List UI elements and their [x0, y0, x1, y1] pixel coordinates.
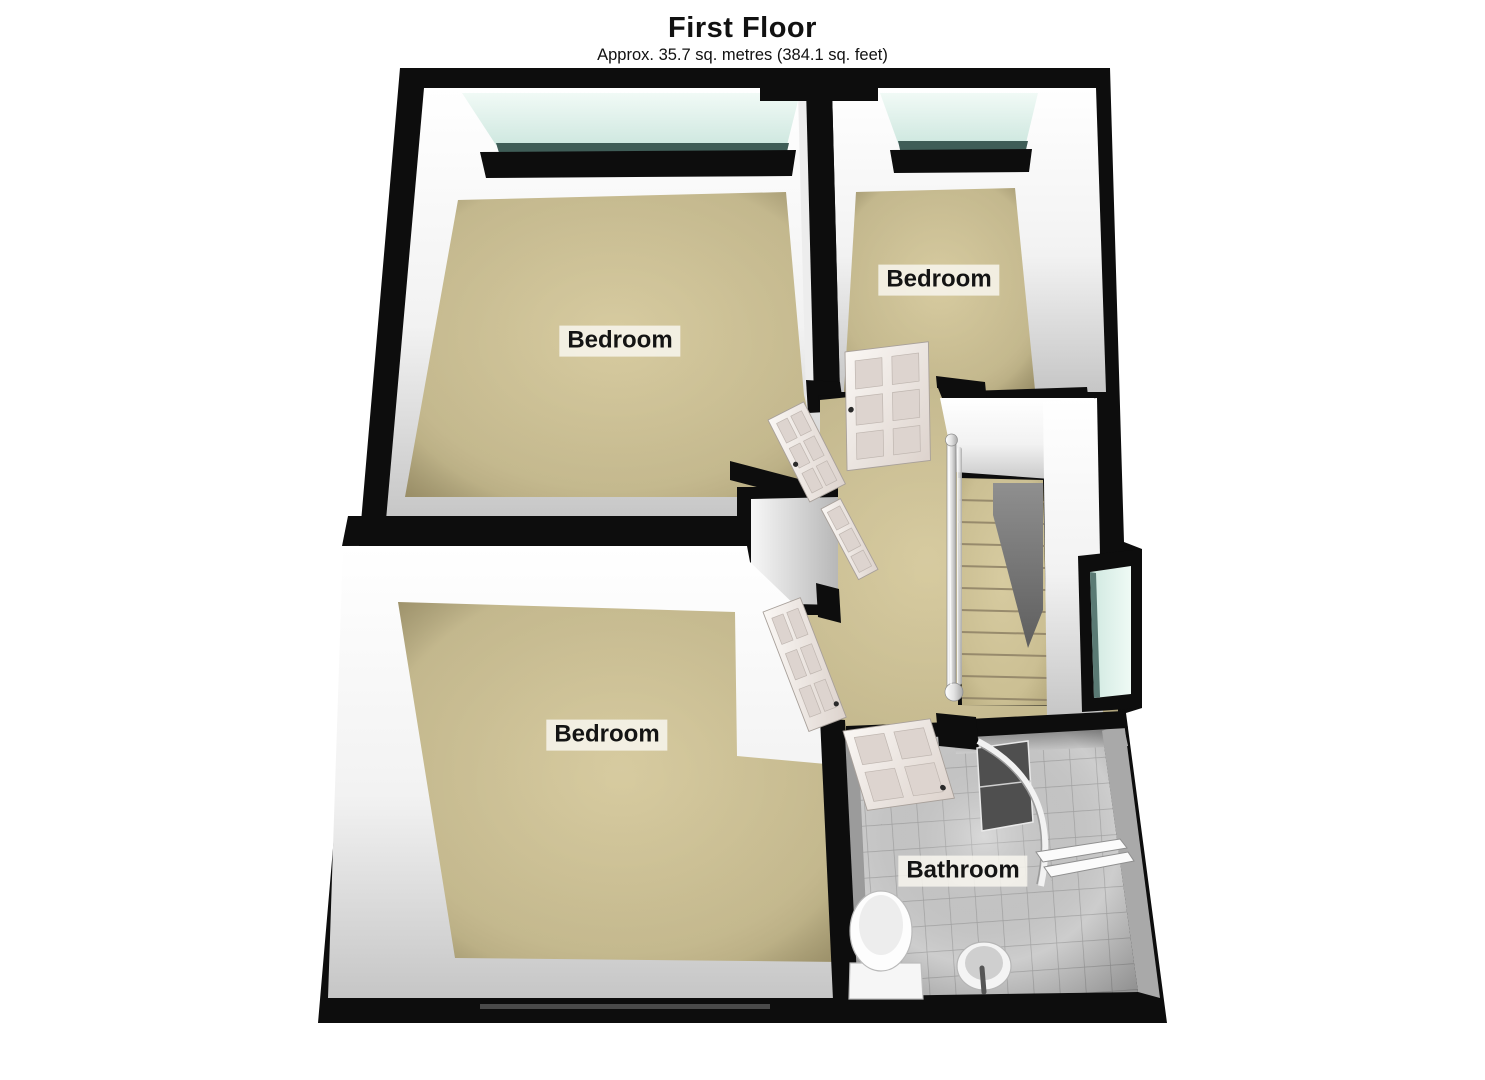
- room-label-bedroom-bottom-left: Bedroom: [546, 720, 667, 751]
- divider-left-bedrooms: [342, 516, 748, 546]
- room-label-bedroom-top-right: Bedroom: [878, 265, 999, 296]
- window-frame: [480, 150, 796, 178]
- window-top-left-glass: [462, 93, 800, 145]
- divider-header: [760, 86, 878, 101]
- bottom-wall-ledge: [480, 1004, 770, 1009]
- room-bedroom-top-right: [832, 88, 1106, 392]
- room-bedroom-top-left: [386, 88, 826, 520]
- door-hinge-stub-d: [936, 713, 979, 750]
- window-frame: [890, 149, 1032, 173]
- floorplan-page: First Floor Approx. 35.7 sq. metres (384…: [0, 0, 1485, 1080]
- room-label-bathroom: Bathroom: [898, 856, 1027, 887]
- page-title: First Floor: [0, 12, 1485, 45]
- page-subtitle: Approx. 35.7 sq. metres (384.1 sq. feet): [0, 46, 1485, 65]
- room-label-bedroom-top-left: Bedroom: [559, 326, 680, 357]
- floorplan-canvas: [0, 0, 1485, 1080]
- banister-icon: [945, 434, 963, 701]
- door-bedroom-top-right: [845, 342, 930, 471]
- door-hinge-stub-b: [816, 583, 841, 623]
- window-top-right-glass: [880, 93, 1038, 143]
- window-stairs-bay: [1078, 549, 1142, 712]
